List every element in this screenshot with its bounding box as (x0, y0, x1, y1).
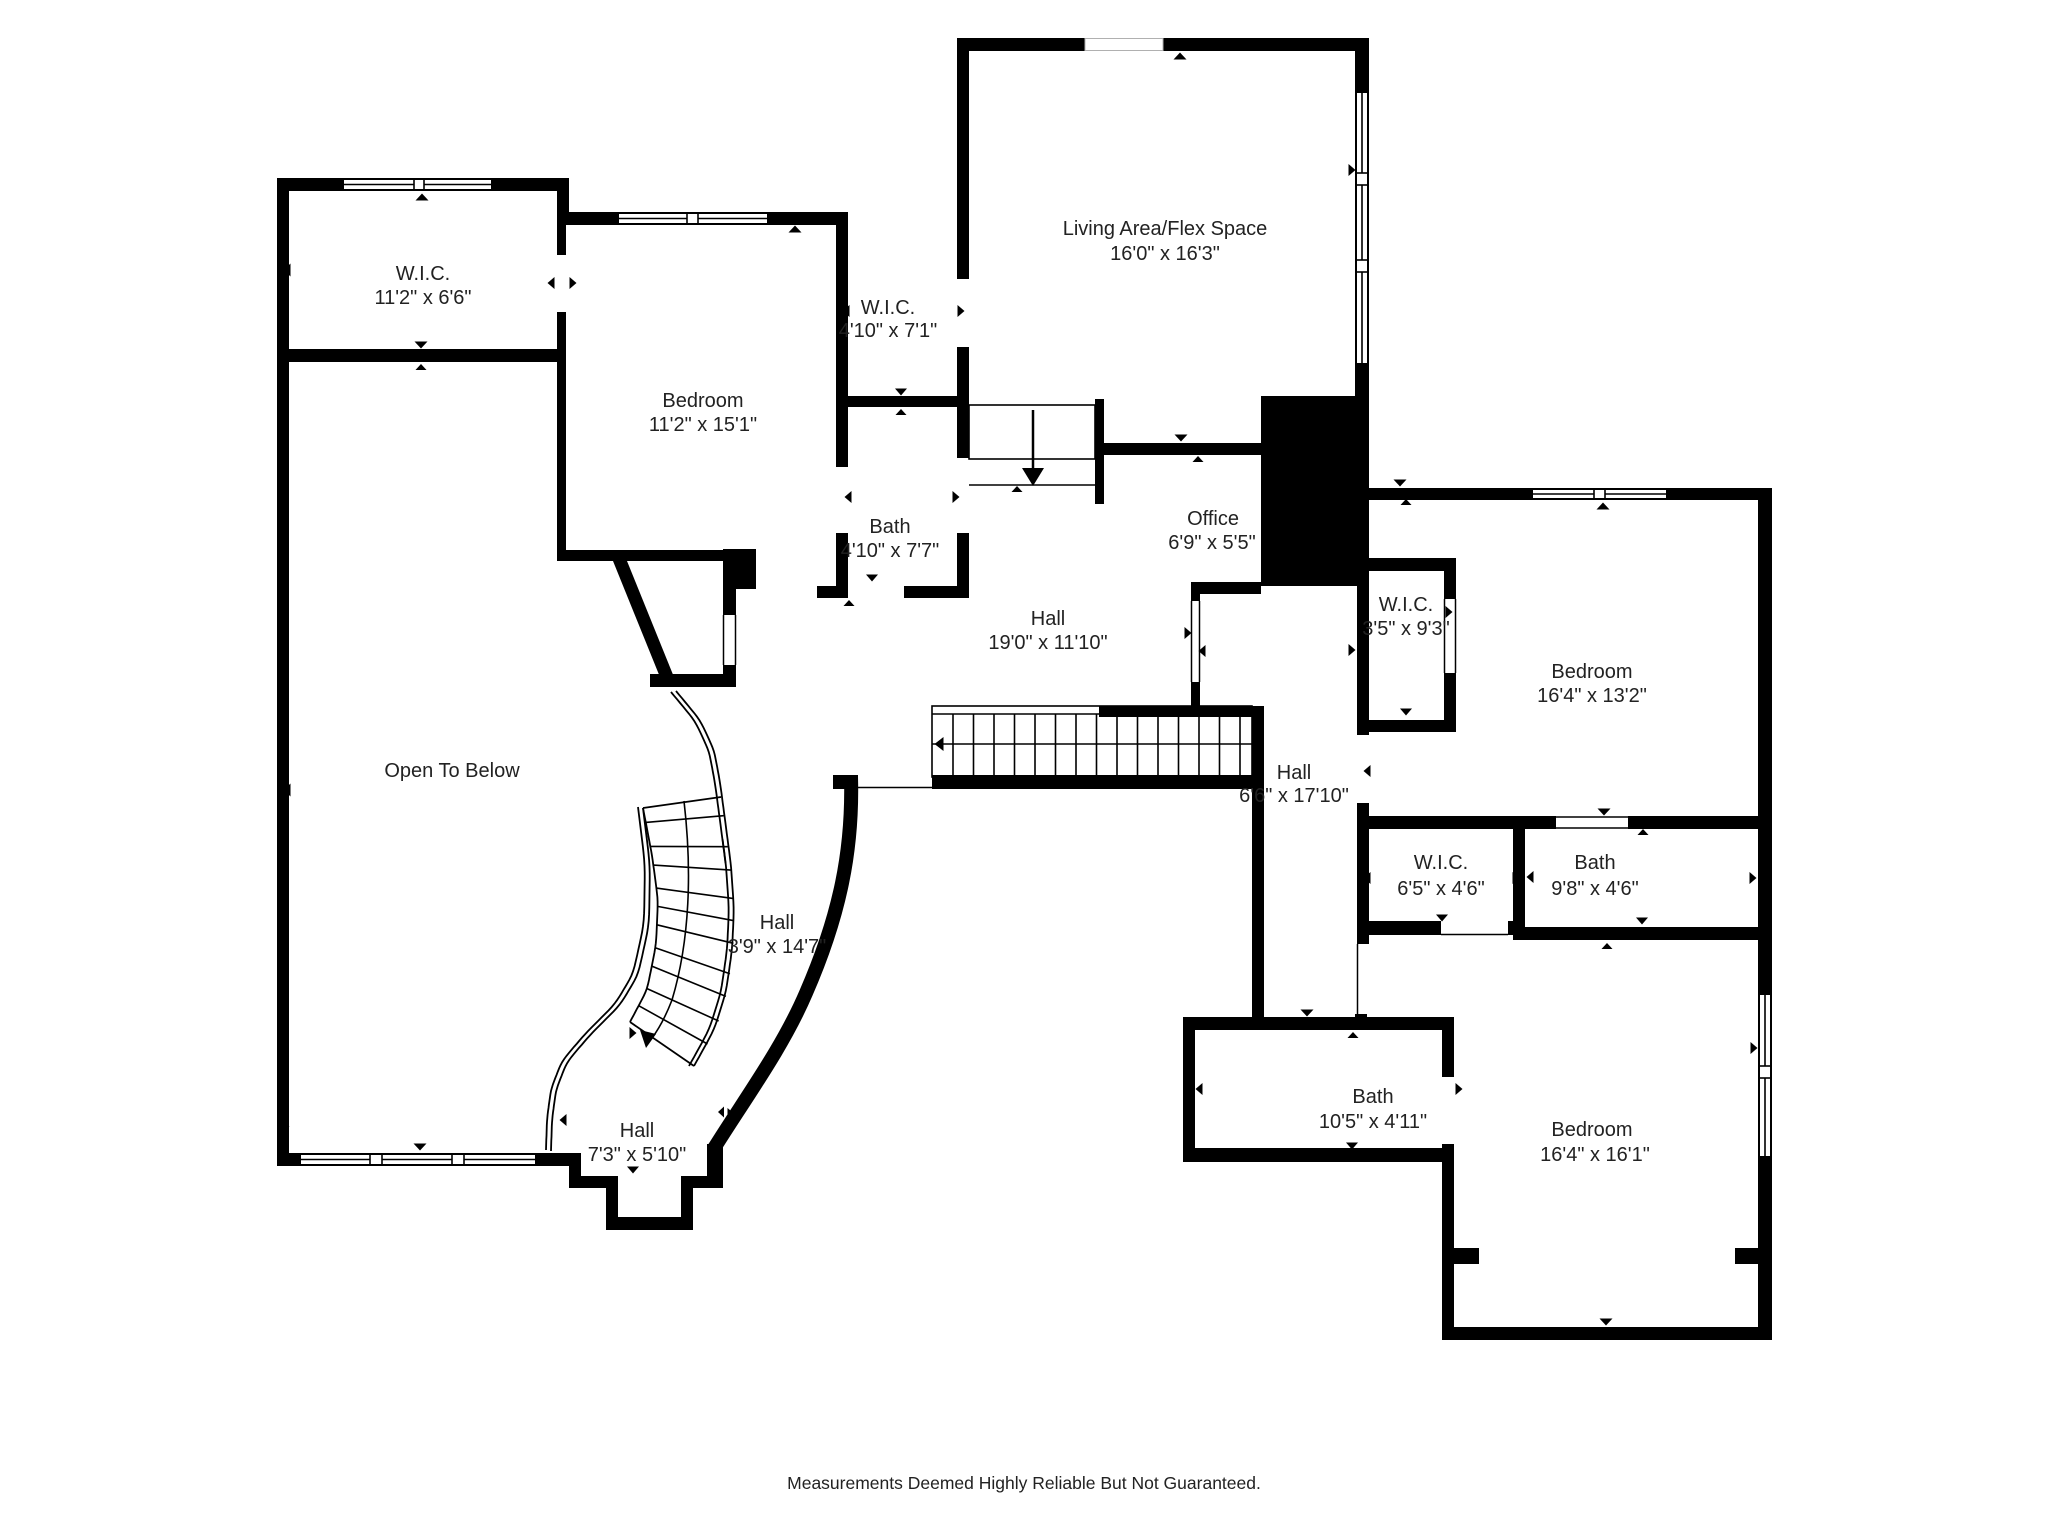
svg-text:Bath: Bath (1574, 852, 1615, 874)
svg-text:6'6" x 17'10": 6'6" x 17'10" (1239, 785, 1349, 807)
svg-text:11'2" x 15'1": 11'2" x 15'1" (649, 414, 757, 436)
svg-text:Bedroom: Bedroom (662, 390, 743, 412)
svg-text:W.I.C.: W.I.C. (1414, 852, 1468, 874)
svg-text:3'5" x 9'3": 3'5" x 9'3" (1362, 618, 1449, 640)
svg-text:Hall: Hall (620, 1120, 654, 1142)
svg-text:16'0" x 16'3": 16'0" x 16'3" (1110, 243, 1220, 265)
svg-text:W.I.C.: W.I.C. (861, 297, 915, 319)
svg-text:Hall: Hall (1031, 608, 1065, 630)
svg-text:16'4" x 13'2": 16'4" x 13'2" (1537, 685, 1647, 707)
svg-text:6'5" x 4'6": 6'5" x 4'6" (1397, 878, 1484, 900)
svg-text:W.I.C.: W.I.C. (396, 263, 450, 285)
svg-text:11'2" x 6'6": 11'2" x 6'6" (374, 287, 471, 309)
svg-text:Office: Office (1187, 508, 1239, 530)
svg-text:Hall: Hall (760, 912, 794, 934)
svg-text:4'10" x 7'7": 4'10" x 7'7" (841, 540, 940, 562)
svg-text:4'10" x 7'1": 4'10" x 7'1" (839, 320, 938, 342)
svg-text:10'5" x 4'11": 10'5" x 4'11" (1319, 1111, 1427, 1133)
svg-text:Bedroom: Bedroom (1551, 661, 1632, 683)
svg-text:W.I.C.: W.I.C. (1379, 594, 1433, 616)
svg-text:19'0" x 11'10": 19'0" x 11'10" (988, 632, 1107, 654)
svg-text:3'9" x 14'7": 3'9" x 14'7" (728, 936, 827, 958)
svg-text:Living Area/Flex Space: Living Area/Flex Space (1063, 218, 1268, 240)
svg-text:Open To Below: Open To Below (384, 760, 520, 782)
svg-text:Bath: Bath (869, 516, 910, 538)
svg-text:Bath: Bath (1352, 1086, 1393, 1108)
svg-text:Hall: Hall (1277, 762, 1311, 784)
svg-text:6'9" x 5'5": 6'9" x 5'5" (1168, 532, 1255, 554)
svg-text:7'3" x 5'10": 7'3" x 5'10" (588, 1144, 687, 1166)
svg-text:16'4" x 16'1": 16'4" x 16'1" (1540, 1144, 1650, 1166)
svg-text:Measurements Deemed Highly Rel: Measurements Deemed Highly Reliable But … (787, 1473, 1261, 1493)
svg-text:Bedroom: Bedroom (1551, 1119, 1632, 1141)
svg-text:9'8" x 4'6": 9'8" x 4'6" (1551, 878, 1638, 900)
